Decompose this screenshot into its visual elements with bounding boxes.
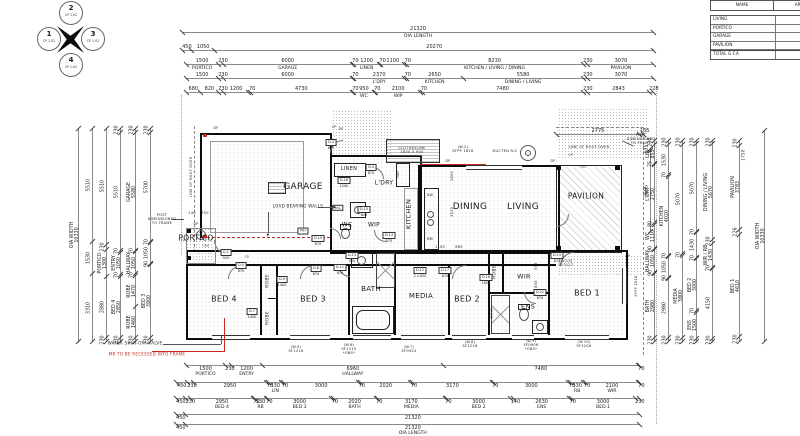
plan-label: MW [427, 238, 434, 242]
dimension-segment: 5510 [112, 133, 125, 251]
dimension-segment: 2630ENS [514, 395, 570, 408]
dimension-segment: DINING / LIVING 5670 [704, 144, 717, 239]
elevation-marker-4: 4 CP 1.02 [59, 53, 83, 77]
dimension-segment: GARAGE 5580 [127, 133, 140, 251]
dimension-segment: ENS 1500 [688, 312, 701, 338]
leader-mb-note [224, 318, 225, 351]
dimension-tier-vertical: OIA WIDTH 10330 [756, 130, 769, 342]
elevation-marker-1: 1 CP 1.02 [37, 27, 61, 51]
area-schedule-table: NAME AREA LIVING 139.7 PORTICO 2.30 GARA… [710, 0, 800, 60]
dimension-segment: BED 2 3000 [688, 259, 701, 311]
plan-label: DUCTED R/C [493, 149, 518, 153]
dimension-tier-vertical: OIA WIDTH 10330 [70, 128, 83, 342]
area-row-value: 12.25 [776, 42, 800, 50]
leader-load-bearing [268, 212, 269, 233]
elevation-marker-number: 4 [60, 56, 82, 65]
dimension-tier-vertical: 230570070105090BED 3 3800230 [142, 128, 155, 342]
partition-robe-wir [502, 252, 504, 292]
dimension-segment: 230 [635, 395, 640, 408]
dimension-segment: 230 [646, 337, 659, 342]
sink-bowl [427, 219, 434, 226]
dimension-segment: 1050 [192, 44, 215, 57]
plan-label: KITCHEN [405, 199, 412, 229]
table-row: PAVILION 12.25 [711, 42, 800, 51]
pavilion-post [556, 246, 561, 251]
partition-ens-bed1 [548, 250, 550, 335]
door-tag: D.4870 [366, 164, 377, 175]
window-bath [353, 335, 391, 340]
dimension-segment: 820 [201, 86, 219, 99]
door-tag: D.19870 [550, 252, 563, 263]
plan-label: ROBE [265, 274, 270, 288]
dimension-segment: 3000BED 1 [571, 395, 635, 408]
plan-label: ROBE [492, 265, 497, 279]
window-bed2 [452, 335, 486, 340]
load-bearing-marker [203, 134, 207, 137]
dimension-segment: PORTICO 1300 [98, 249, 111, 276]
dimension-segment: 2950BED 4 [191, 395, 254, 408]
dimension-segment: 3000 [494, 379, 569, 392]
dimension-tier: 1500PORTICO2306000GARAGE701200LINEN70110… [186, 58, 654, 71]
dimension-segment: 2370L'DRY [354, 72, 405, 85]
plan-label: WATER SHUT-OFF VALVE [108, 342, 163, 347]
plan-label: (W.9) SF0906 *OBS* [524, 339, 539, 351]
ens-shower [491, 295, 510, 334]
plan-label: POST DIMENSIONED TO FRAME [148, 213, 176, 225]
plan-label: CBO [202, 244, 209, 247]
plan-label: MB TO BE RECESSED INTO FRAME [109, 353, 186, 358]
plan-label: PAVILION [568, 193, 604, 202]
table-row-total: TOTAL G.F.A 191.4 [711, 50, 800, 59]
plan-label: 750 [201, 211, 209, 215]
area-table-col-name: NAME [711, 1, 774, 10]
pavilion-walls [556, 165, 622, 253]
plan-label: 860 [455, 245, 463, 249]
elevation-marker-star-icon [57, 26, 84, 53]
plan-label: SFPP 1818 [634, 275, 638, 296]
dimension-tier-vertical: 551015303310 [84, 128, 97, 342]
dimension-segment: 2020BATH [333, 395, 376, 408]
plan-label: WC [342, 223, 353, 230]
dimension-segment: 1500 [186, 72, 218, 85]
door-tag: D.5870 [236, 262, 247, 273]
dimension-segment: 2880 [98, 276, 111, 337]
dimension-segment: 4730 [250, 86, 352, 99]
leader-water-valve [163, 344, 221, 345]
fan-hub [525, 150, 531, 156]
dimension-segment: 5510 [84, 128, 97, 242]
dimension-tier-vertical: 230DINING / LIVING 5670230WIR / RB 14307… [704, 140, 717, 342]
dimension-segment: ROBE 1460 [127, 306, 140, 337]
dimension-tier: 680820230120070473070950WC702100WIP70748… [186, 86, 654, 99]
plan-label: DP [339, 128, 344, 132]
dimension-segment: 2100WIP [376, 86, 421, 99]
dimension-segment: 3000BED 3 [268, 395, 332, 408]
plan-label: DP [551, 160, 556, 164]
door-tag: D.21870 [533, 289, 546, 300]
plan-label: DINING [453, 202, 487, 212]
plan-label: CP [569, 154, 574, 158]
plan-label: DP [214, 127, 219, 131]
elevation-marker-3: 3 CP 1.02 [81, 27, 105, 51]
plan-label: L'DRY [375, 181, 394, 188]
dimension-segment: L'DRY 2750 [646, 165, 659, 223]
window-bed4 [212, 335, 250, 340]
plan-label: ▼ [267, 233, 270, 237]
area-table-header: NAME AREA [710, 0, 800, 11]
elevation-marker-ref: CP 1.02 [60, 13, 82, 17]
door-tag: D.161200 [337, 177, 350, 188]
dimension-segment: 6000 [223, 72, 352, 85]
dimension-segment: BED 1 4610 [731, 234, 744, 337]
dimension-segment: 5700 [142, 132, 155, 241]
dimension-segment: 5070 [688, 144, 701, 232]
plan-label: 3520 [450, 207, 454, 217]
robe-divider [268, 298, 276, 299]
dimension-tier-vertical: 5510230PORTICO 13002880230 [98, 128, 111, 342]
dimension-tier: 45021320OIA LENGTH [176, 421, 640, 434]
plan-label: GARAGE [283, 182, 322, 192]
door-tag: D.13920 [345, 252, 358, 263]
plan-label: NICHE [490, 308, 493, 319]
dimension-segment: 3170MEDIA [378, 395, 446, 408]
dimension-tier-vertical: 230LIN 85575L'DRY 275080WC 111080HALLWAY… [646, 140, 659, 342]
dimension-segment: 5070 [674, 145, 687, 254]
plan-label: ENS [521, 303, 535, 310]
door-tag: D.122 x 820 [413, 267, 426, 278]
dimension-segment: 3000 [284, 379, 359, 392]
dimension-segment: 1500PORTICO [186, 58, 218, 71]
area-table-col-area: AREA [774, 1, 800, 10]
dimension-segment: 2843 [588, 86, 649, 99]
dimension-tier: 15002306000702370L'DRY702650KITCHEN5580D… [186, 72, 654, 85]
plan-label: BED 2 [454, 294, 480, 303]
plan-label: CP [332, 126, 337, 130]
dimension-segment: 230 [731, 337, 744, 342]
elevation-marker-number: 3 [82, 30, 104, 39]
elevation-marker-ref: CP 1.02 [60, 65, 82, 69]
window-bed1-side [622, 268, 627, 304]
plan-label: LIVING [507, 202, 539, 212]
dimension-segment: 228 [649, 86, 654, 99]
plan-label: LINE OF ROOF OVER [569, 145, 610, 149]
bath-tub-inner [356, 310, 390, 330]
elevation-marker-number: 1 [38, 30, 60, 39]
dimension-segment: KITCHEN 4020 [660, 176, 673, 255]
plan-label: (W.8) SF1218 [463, 340, 478, 348]
dimension-tier-vertical: 230507070143070BED 2 300070ENS 1500230 [688, 140, 701, 342]
pavilion-post [615, 246, 620, 251]
elevation-marker-2: 2 CP 1.02 [59, 1, 83, 25]
plan-label: ROBE [265, 311, 270, 325]
partition-bed2-robe [488, 252, 490, 335]
plan-label: DP [626, 255, 631, 259]
dimension-segment: 8230KITCHEN / LIVING / DINING [406, 58, 583, 71]
dimension-segment: 1200 [223, 86, 249, 99]
dimension-segment: 950WC [354, 86, 374, 99]
plan-label: DW [427, 194, 433, 198]
pavilion-post [556, 165, 561, 170]
dimension-tier: 450230295070530LIN7030007020207031707030… [176, 379, 640, 392]
dimension-tier: 1500PORTICO2301200ENTRY6960HALLWAY748070 [186, 362, 640, 375]
partition-bed4-robe [260, 265, 262, 335]
door-tag: D.8870 [311, 265, 322, 276]
dimension-segment: 230 [674, 337, 687, 342]
door-tag: D.181620 [479, 274, 492, 285]
plan-label: (W.10) SF1206 [577, 340, 592, 348]
portico-post [187, 256, 191, 260]
boundary-dotted-line [181, 95, 182, 255]
door-tag: D.10870 [311, 235, 324, 246]
sink-bowl [427, 211, 434, 218]
area-row-value: 139.7 [776, 16, 800, 24]
plan-label: (W.2) SFPP 1818 [452, 145, 473, 153]
dimension-segment: 230 [660, 337, 673, 342]
plan-label: DP [446, 160, 451, 164]
door-tag: D.17870 [438, 267, 451, 278]
plan-label: ▶ [334, 205, 337, 209]
plan-label: (W.7) SF0924 [402, 345, 417, 353]
plan-label: (W.5) SF1218 [289, 345, 304, 353]
dimension-tier-vertical: 230PAVILION 3783226BED 1 4610230 [731, 140, 744, 342]
floor-plan-drawing: 1 CP 1.02 2 CP 1.02 3 CP 1.02 4 CP 1.02 … [0, 0, 800, 435]
area-total-value: 191.4 [776, 51, 800, 59]
plan-label: MH [297, 228, 308, 235]
leader-water-valve [221, 336, 222, 344]
plan-label: MEDIA [409, 292, 433, 300]
table-row: PORTICO 2.30 [711, 25, 800, 34]
plan-label: CLOTHESLINE 1800 X 900 [398, 146, 425, 154]
ens-basin [536, 323, 544, 331]
plan-label: CBO [579, 165, 586, 168]
door-tag: D.3870 [326, 139, 337, 150]
dimension-segment: 3000BED 2 [447, 395, 511, 408]
dimension-segment: HALLWAY 1050 [646, 250, 659, 272]
plan-label: 140 [188, 211, 196, 215]
plan-label: LOAD BEARING WALLS [273, 205, 323, 210]
area-row-name: LIVING [711, 16, 776, 24]
table-row: LIVING 139.7 [711, 16, 800, 25]
dimension-segment: 2100WIR [586, 379, 639, 392]
window-living [466, 165, 522, 170]
area-row-name: PAVILION [711, 42, 776, 50]
dimension-tier-vertical: 230153070KITCHEN 4020701050902980230 [660, 140, 673, 342]
dimension-segment: 3310 [84, 274, 97, 342]
plan-label: BED 4 [211, 294, 237, 303]
plan-label: REF [397, 171, 401, 178]
area-total-label: TOTAL G.F.A [711, 51, 776, 59]
dimension-segment: ROBE 1470 [127, 275, 140, 306]
plan-label: BATH [361, 285, 381, 293]
dimension-segment: 2950 [193, 379, 267, 392]
dimension-segment: 680 [186, 86, 201, 99]
plan-label: (W.6) SF1215 *OBS* [342, 343, 357, 355]
dimension-segment: 2980 [660, 279, 673, 338]
area-row-value: 37.12 [776, 33, 800, 41]
dimension-segment: 4150 [704, 268, 717, 338]
dimension-segment: MEDIA 3800 [674, 255, 687, 337]
plan-label: LINE OF ROOF OVER [189, 157, 193, 198]
dimension-segment: BED 4 2850 [112, 276, 125, 337]
plan-label: 595 [534, 262, 538, 270]
dimension-tier-vertical: 230551070ENTRY 105070BED 4 2850230 [112, 128, 125, 342]
dimension-segment: 6960HALLWAY [262, 362, 443, 375]
door-tag: D.15620 [357, 206, 370, 217]
plan-label: SD [245, 255, 250, 258]
dimension-tier-vertical: 230507070MEDIA 3800230 [674, 140, 687, 342]
window-media [401, 335, 445, 340]
dimension-segment: 1200ENTRY [231, 362, 262, 375]
dimension-segment: 3170 [413, 379, 492, 392]
door-tag: D.1920 [221, 249, 232, 260]
elevation-marker-number: 2 [60, 4, 82, 13]
pavilion-post [615, 165, 620, 170]
door-tag: D.14870 [382, 232, 395, 243]
plan-label: LINEN [341, 167, 357, 173]
plan-label: 1100 [435, 245, 445, 249]
dimension-segment: 2650KITCHEN [406, 72, 463, 85]
plan-label: BED 3 [300, 294, 326, 303]
dimension-segment: 1530 [84, 242, 97, 274]
dimension-segment: 70 [638, 379, 640, 392]
dimension-segment: 1530 [660, 145, 673, 175]
dimension-segment: 1500PORTICO [186, 362, 225, 375]
plan-label: TP [181, 239, 185, 242]
dimension-segment: 3070PAVILION [588, 58, 654, 71]
dimension-tier: 4502302950BED 470530RB703000BED 3702020B… [176, 395, 640, 408]
dimension-tier: 450105020270 [182, 44, 654, 57]
plan-label: 1800 [450, 171, 454, 181]
dimension-segment: 1200LINEN [354, 58, 380, 71]
elevation-marker-ref: CP 1.02 [82, 39, 104, 43]
door-tag: D.91400 [277, 276, 288, 287]
window-bed1 [565, 335, 609, 340]
plan-label: 1750 [742, 149, 747, 160]
window-bed3 [290, 335, 330, 340]
bath-shower [376, 253, 395, 288]
dimension-segment: WC 1110 [646, 225, 659, 249]
dimension-segment: OIA WIDTH 10330 [756, 130, 769, 342]
dimension-segment: 1100 [381, 58, 405, 71]
dimension-segment: 70 [638, 362, 640, 375]
dimension-segment: 21320OIA LENGTH [186, 421, 640, 434]
door-tag: D.71400 [247, 308, 258, 319]
dimension-segment: WIR / RB 1430 [704, 243, 717, 267]
dimension-tier-vertical: 230GARAGE 558070HALLWAY 105070ROBE 1470R… [127, 128, 140, 342]
portico-post [187, 229, 191, 233]
dimension-segment: BATH 2980 [646, 274, 659, 337]
door-tag: D.11870 [333, 264, 346, 275]
dimension-segment: 21320OIA LENGTH [182, 26, 654, 39]
dimension-segment: 2020 [360, 379, 411, 392]
dimension-segment: 3070 [588, 72, 654, 85]
elevation-marker-ref: CP 1.02 [38, 39, 60, 43]
dimension-segment: 5510 [98, 128, 111, 244]
area-row-name: GARAGE [711, 33, 776, 41]
dimension-segment: 230 [704, 338, 717, 342]
table-row: GARAGE 37.12 [711, 33, 800, 42]
dimension-segment: BED 3 3800 [142, 265, 155, 338]
dimension-tier: 21320OIA LENGTH [182, 26, 654, 39]
dimension-segment: 6000GARAGE [223, 58, 352, 71]
dimension-segment: OIA WIDTH 10330 [70, 128, 83, 342]
plan-label: BED 1 [574, 288, 600, 297]
area-row-value: 2.30 [776, 25, 800, 33]
dimension-segment: 7480 [443, 362, 638, 375]
dimension-segment: 5580DINING / LIVING [463, 72, 583, 85]
dimension-segment: 7480 [422, 86, 583, 99]
area-row-name: PORTICO [711, 25, 776, 33]
plan-label: DP [194, 223, 199, 227]
dimension-segment: 20270 [215, 44, 654, 57]
plan-label: WIP [368, 223, 380, 230]
plan-label: WIR [517, 273, 531, 280]
plan-label: 850 [534, 280, 538, 288]
plan-label: POST DIMENSIONED TO FRAME [627, 133, 655, 145]
area-table-body: LIVING 139.7 PORTICO 2.30 GARAGE 37.12 P… [710, 15, 800, 60]
dimension-segment: 230 [688, 338, 701, 342]
